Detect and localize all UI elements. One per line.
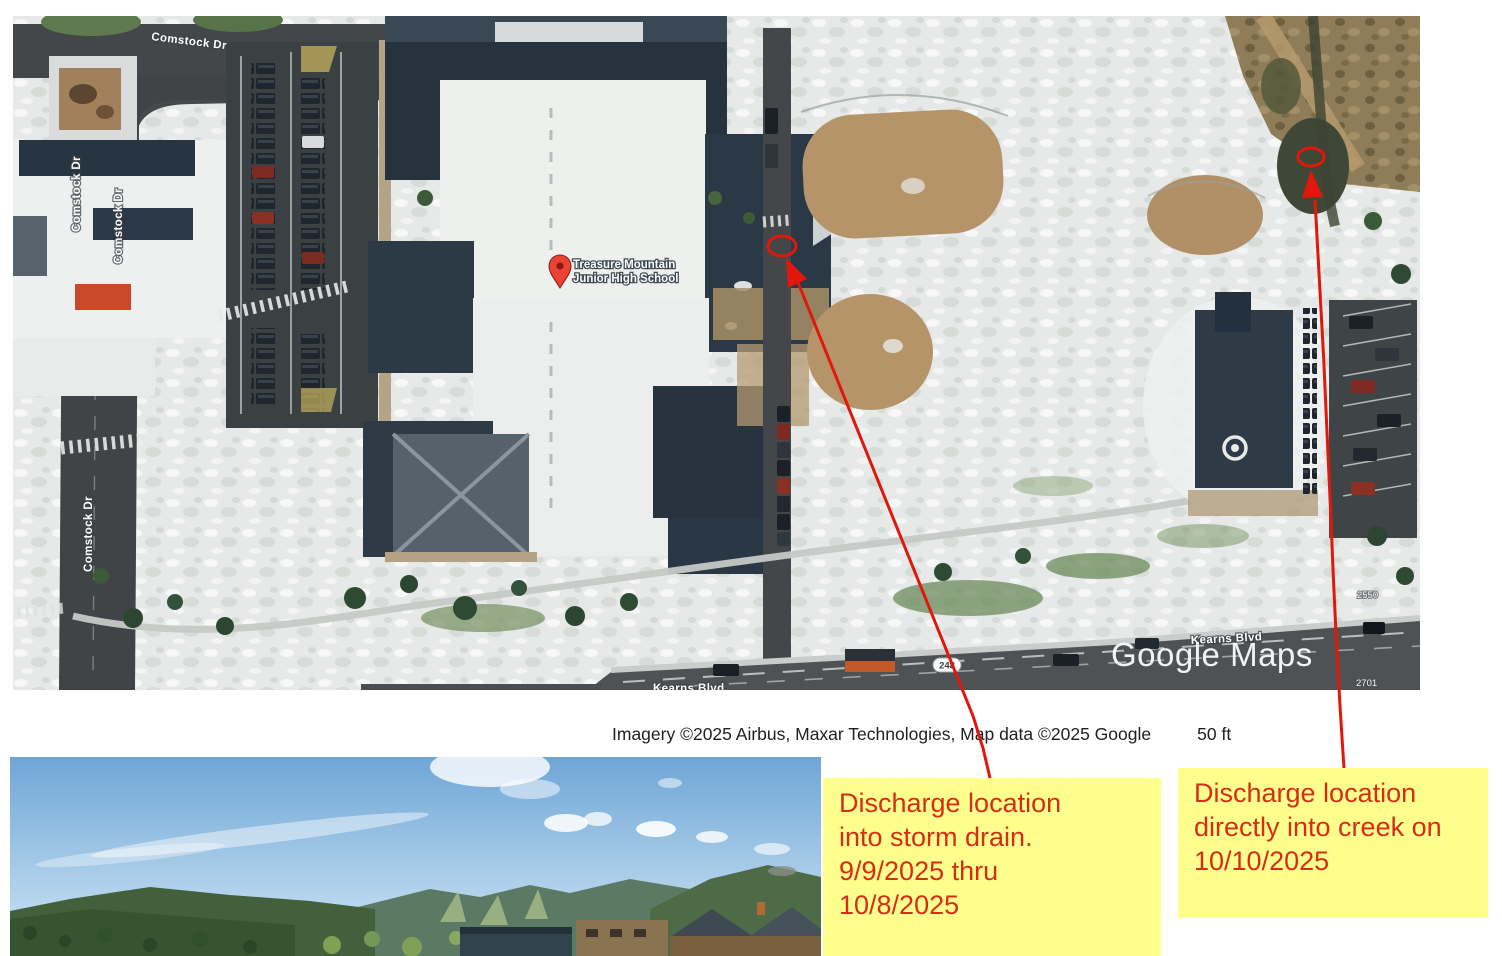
note-storm-drain: Discharge location into storm drain. 9/9… — [823, 778, 1161, 956]
satellite-imagery: Treasure Mountain Junior High School Com… — [13, 16, 1420, 690]
parcel-label-2701: 2701 — [1356, 678, 1377, 689]
note-storm-drain-line1: Discharge location — [839, 786, 1161, 820]
ball-diamond-lower — [807, 294, 933, 410]
ball-diamond-east — [1147, 175, 1263, 255]
route-248-badge: 248 — [933, 658, 961, 672]
note-storm-drain-line3: 9/9/2025 thru — [839, 854, 1161, 888]
west-parking-lot — [219, 40, 391, 430]
site-photo — [10, 757, 821, 956]
pin-label-line1: Treasure Mountain — [573, 259, 675, 271]
east-road — [763, 28, 791, 690]
pavilion-hip-roof — [385, 434, 537, 562]
note-creek: Discharge location directly into creek o… — [1178, 768, 1488, 918]
street-label-comstock-left3: Comstock Dr — [83, 496, 95, 572]
ball-diamond-upper — [800, 107, 1006, 241]
note-creek-line3: 10/10/2025 — [1194, 844, 1488, 878]
note-creek-line2: directly into creek on — [1194, 810, 1488, 844]
playground-plaza — [49, 56, 137, 142]
street-label-kearns-clipped: Kearns Blvd — [653, 683, 725, 690]
map-scale-label: 50 ft — [1197, 724, 1231, 745]
route-248-text: 248 — [939, 661, 955, 672]
note-storm-drain-line2: into storm drain. — [839, 820, 1161, 854]
attribution-text: Imagery ©2025 Airbus, Maxar Technologies… — [612, 724, 1151, 745]
parcel-label-2550: 2550 — [1357, 590, 1378, 601]
pin-label-line2: Junior High School — [573, 273, 678, 285]
google-maps-watermark: Google Maps — [1111, 636, 1313, 673]
satellite-map: Treasure Mountain Junior High School Com… — [13, 16, 1420, 690]
landscape-photo — [10, 757, 821, 956]
street-label-comstock-left1: Comstock Dr — [71, 156, 83, 232]
orange-truck — [845, 649, 895, 672]
note-storm-drain-line4: 10/8/2025 — [839, 888, 1161, 922]
map-attribution: Imagery ©2025 Airbus, Maxar Technologies… — [612, 724, 1231, 745]
street-label-comstock-left2: Comstock Dr — [113, 188, 125, 264]
document-page: Treasure Mountain Junior High School Com… — [0, 0, 1502, 956]
note-creek-line1: Discharge location — [1194, 776, 1488, 810]
